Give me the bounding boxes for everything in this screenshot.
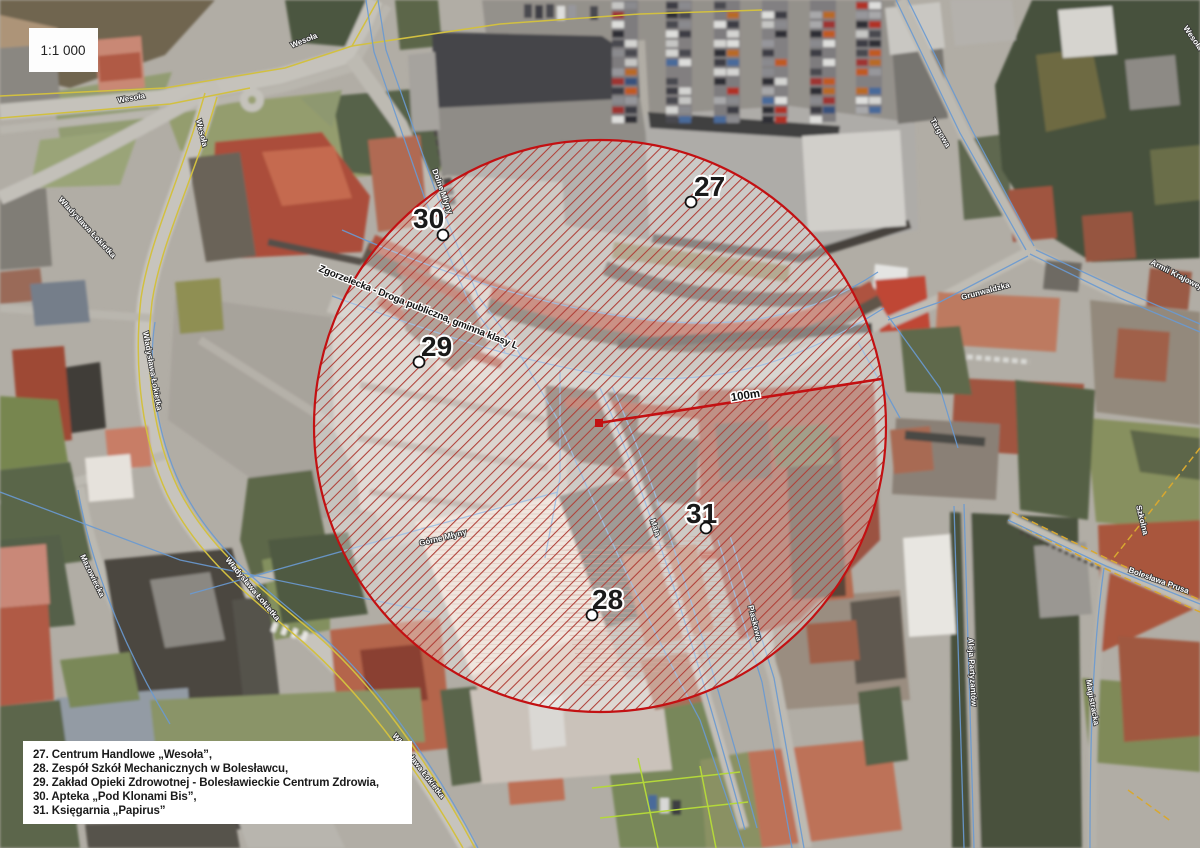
svg-text:29: 29 [421,331,452,362]
svg-text:30: 30 [413,203,444,234]
svg-text:30. Apteka „Pod Klonami Bis”,: 30. Apteka „Pod Klonami Bis”, [33,791,196,803]
svg-text:31. Księgarnia „Papirus”: 31. Księgarnia „Papirus” [33,805,165,817]
svg-text:29. Zakład Opieki Zdrowotnej -: 29. Zakład Opieki Zdrowotnej - Bolesławi… [33,777,379,789]
svg-text:1:1 000: 1:1 000 [40,43,85,58]
svg-text:27: 27 [694,171,725,202]
svg-text:28. Zespół Szkół Mechanicznych: 28. Zespół Szkół Mechanicznych w Bolesła… [33,763,288,775]
svg-text:28: 28 [592,584,623,615]
svg-text:27. Centrum Handlowe „Wesoła”,: 27. Centrum Handlowe „Wesoła”, [33,749,212,761]
